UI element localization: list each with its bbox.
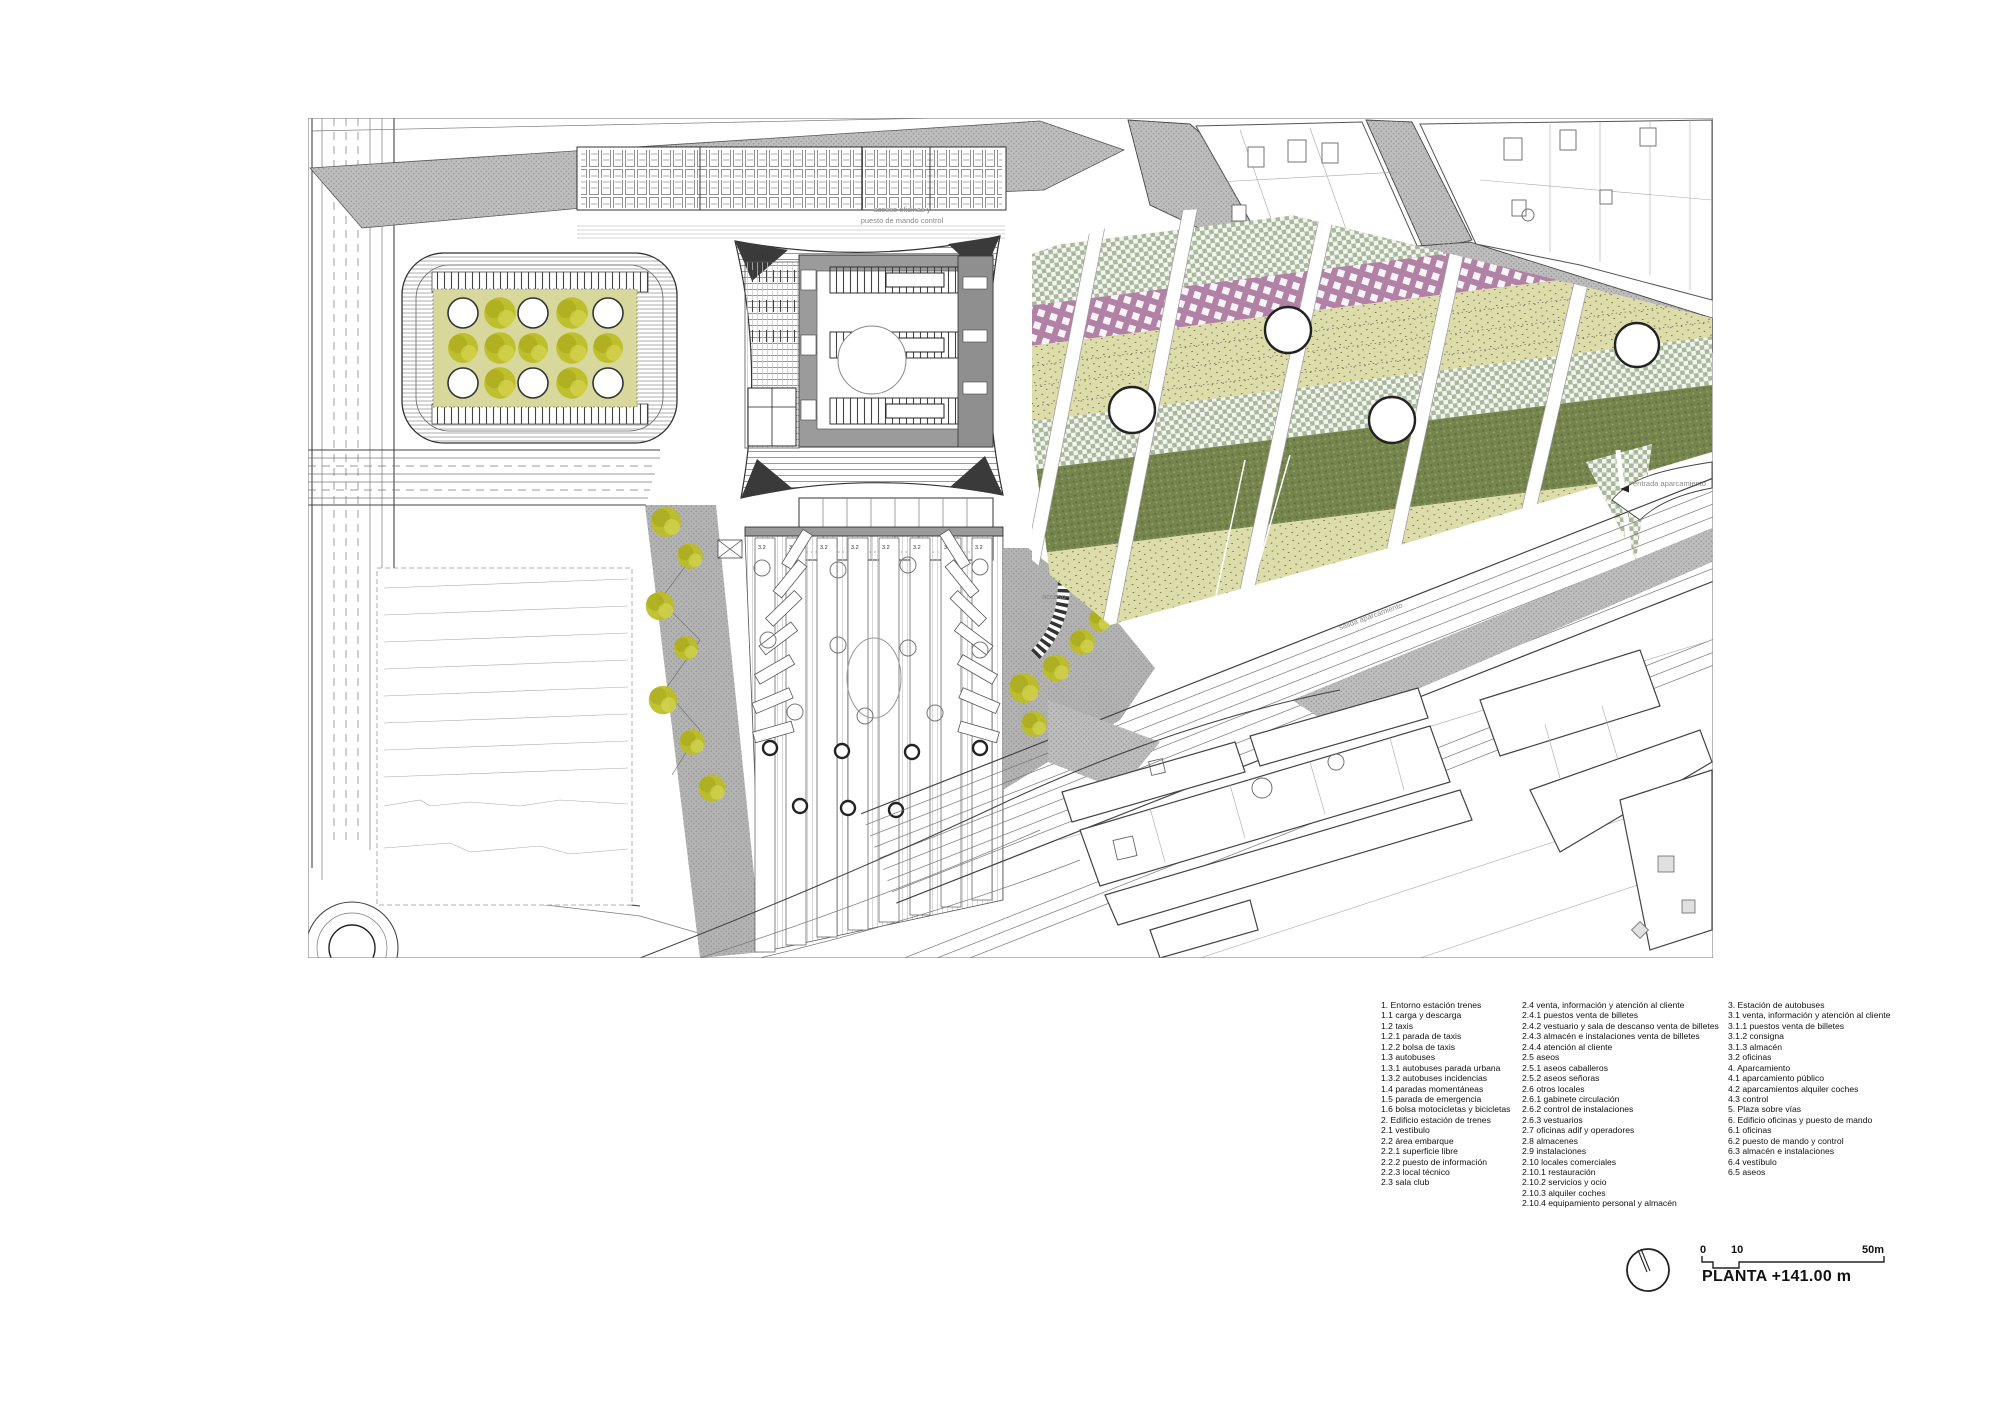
legend-column-2: 2.4 venta, información y atención al cli… <box>1522 1000 1719 1209</box>
sheet: { "title": "PLANTA +141.00 m", "scale_ba… <box>0 0 2000 1415</box>
legend-item: 1.6 bolsa motocicletas y bicicletas <box>1381 1104 1510 1114</box>
legend-item: 2.6.1 gabinete circulación <box>1522 1094 1719 1104</box>
legend-item: 2.5.2 aseos señoras <box>1522 1073 1719 1083</box>
tree-plaza <box>433 289 637 407</box>
legend-column-3: 3. Estación de autobuses3.1 venta, infor… <box>1728 1000 1890 1177</box>
legend-item: 3. Estación de autobuses <box>1728 1000 1890 1010</box>
legend-item: 2. Edificio estación de trenes <box>1381 1115 1510 1125</box>
legend-item: 1.4 paradas momentáneas <box>1381 1084 1510 1094</box>
parking-strip <box>577 147 1006 210</box>
svg-text:3.2: 3.2 <box>975 545 983 551</box>
legend-item: 1.2.2 bolsa de taxis <box>1381 1042 1510 1052</box>
legend-item: 1.3 autobuses <box>1381 1052 1510 1062</box>
legend-item: 4.3 control <box>1728 1094 1890 1104</box>
svg-text:3.2: 3.2 <box>882 545 890 551</box>
legend-item: 2.4.1 puestos venta de billetes <box>1522 1010 1719 1020</box>
legend-item: 2.6.3 vestuarios <box>1522 1115 1719 1125</box>
legend-item: 6.2 puesto de mando y control <box>1728 1136 1890 1146</box>
legend-item: 1.5 parada de emergencia <box>1381 1094 1510 1104</box>
legend-item: 2.1 vestíbulo <box>1381 1125 1510 1135</box>
legend-item: 1.2.1 parada de taxis <box>1381 1031 1510 1041</box>
legend-item: 2.6 otros locales <box>1522 1084 1719 1094</box>
legend-item: 2.4.2 vestuario y sala de descanso venta… <box>1522 1021 1719 1031</box>
scale-tick-0: 0 <box>1700 1244 1706 1256</box>
legend-item: 2.4 venta, información y atención al cli… <box>1522 1000 1719 1010</box>
station-note-line2: puesto de mando control <box>861 216 944 225</box>
legend-item: 6.5 aseos <box>1728 1167 1890 1177</box>
station-atrium-circle <box>838 326 906 394</box>
legend-item: 4.1 aparcamiento público <box>1728 1073 1890 1083</box>
legend-item: 2.6.2 control de instalaciones <box>1522 1104 1719 1114</box>
svg-text:3.2: 3.2 <box>913 545 921 551</box>
scale-tick-50: 50m <box>1862 1244 1884 1256</box>
bus-loop <box>402 253 677 443</box>
station-note-line1: acceso oficinas y <box>873 205 930 214</box>
legend-column-1: 1. Entorno estación trenes1.1 carga y de… <box>1381 1000 1510 1188</box>
legend-item: 6. Edificio oficinas y puesto de mando <box>1728 1115 1890 1125</box>
legend-item: 6.3 almacén e instalaciones <box>1728 1146 1890 1156</box>
legend-item: 2.2 área embarque <box>1381 1136 1510 1146</box>
legend-item: 2.10.2 servicios y ocio <box>1522 1177 1719 1187</box>
legend-item: 3.1.2 consigna <box>1728 1031 1890 1041</box>
bus-forecourt: 3.2 3.2 3.2 3.2 3.2 3.2 3.2 3.2 <box>745 527 1003 952</box>
access-label: acceso <box>1042 592 1066 601</box>
legend-item: 2.2.1 superficie libre <box>1381 1146 1510 1156</box>
scale-bar: 0 10 50m <box>1700 1244 1884 1268</box>
legend-item: 1. Entorno estación trenes <box>1381 1000 1510 1010</box>
station-room-label: 2.5.2 <box>757 254 769 260</box>
legend-item: 1.3.1 autobuses parada urbana <box>1381 1063 1510 1073</box>
legend-item: 2.10.4 equipamiento personal y almacén <box>1522 1198 1719 1208</box>
scale-tick-10: 10 <box>1731 1244 1743 1256</box>
legend-item: 6.1 oficinas <box>1728 1125 1890 1135</box>
plan-title: PLANTA +141.00 m <box>1702 1268 1851 1286</box>
site-plan: acceso oficinas y puesto de mando contro… <box>306 116 1948 1031</box>
north-arrow <box>1627 1249 1669 1291</box>
legend-item: 2.10 locales comerciales <box>1522 1157 1719 1167</box>
legend-item: 2.10.1 restauración <box>1522 1167 1719 1177</box>
legend-item: 2.8 almacenes <box>1522 1136 1719 1146</box>
legend-item: 1.3.2 autobuses incidencias <box>1381 1073 1510 1083</box>
legend-item: 2.2.3 local técnico <box>1381 1167 1510 1177</box>
legend-item: 4. Aparcamiento <box>1728 1063 1890 1073</box>
legend-item: 3.2 oficinas <box>1728 1052 1890 1062</box>
rail-yard <box>377 568 632 905</box>
legend-item: 2.5.1 aseos caballeros <box>1522 1063 1719 1073</box>
legend-item: 2.4.4 atención al cliente <box>1522 1042 1719 1052</box>
legend-item: 1.2 taxis <box>1381 1021 1510 1031</box>
entrance-label: entrada aparcamiento <box>1633 479 1706 488</box>
legend-item: 2.3 sala club <box>1381 1177 1510 1187</box>
legend-item: 2.2.2 puesto de información <box>1381 1157 1510 1167</box>
legend-item: 2.4.3 almacén e instalaciones venta de b… <box>1522 1031 1719 1041</box>
legend-item: 3.1 venta, información y atención al cli… <box>1728 1010 1890 1020</box>
legend-item: 2.9 instalaciones <box>1522 1146 1719 1156</box>
svg-text:3.2: 3.2 <box>758 545 766 551</box>
legend-item: 6.4 vestíbulo <box>1728 1157 1890 1167</box>
station-west-annex <box>745 262 799 448</box>
legend-item: 2.10.3 alquiler coches <box>1522 1188 1719 1198</box>
legend-item: 2.5 aseos <box>1522 1052 1719 1062</box>
legend-item: 4.2 aparcamientos alquiler coches <box>1728 1084 1890 1094</box>
svg-text:3.2: 3.2 <box>820 545 828 551</box>
svg-text:3.2: 3.2 <box>851 545 859 551</box>
legend-item: 3.1.3 almacén <box>1728 1042 1890 1052</box>
legend-item: 5. Plaza sobre vías <box>1728 1104 1890 1114</box>
legend-item: 1.1 carga y descarga <box>1381 1010 1510 1020</box>
legend-item: 3.1.1 puestos venta de billetes <box>1728 1021 1890 1031</box>
legend-item: 2.7 oficinas adif y operadores <box>1522 1125 1719 1135</box>
